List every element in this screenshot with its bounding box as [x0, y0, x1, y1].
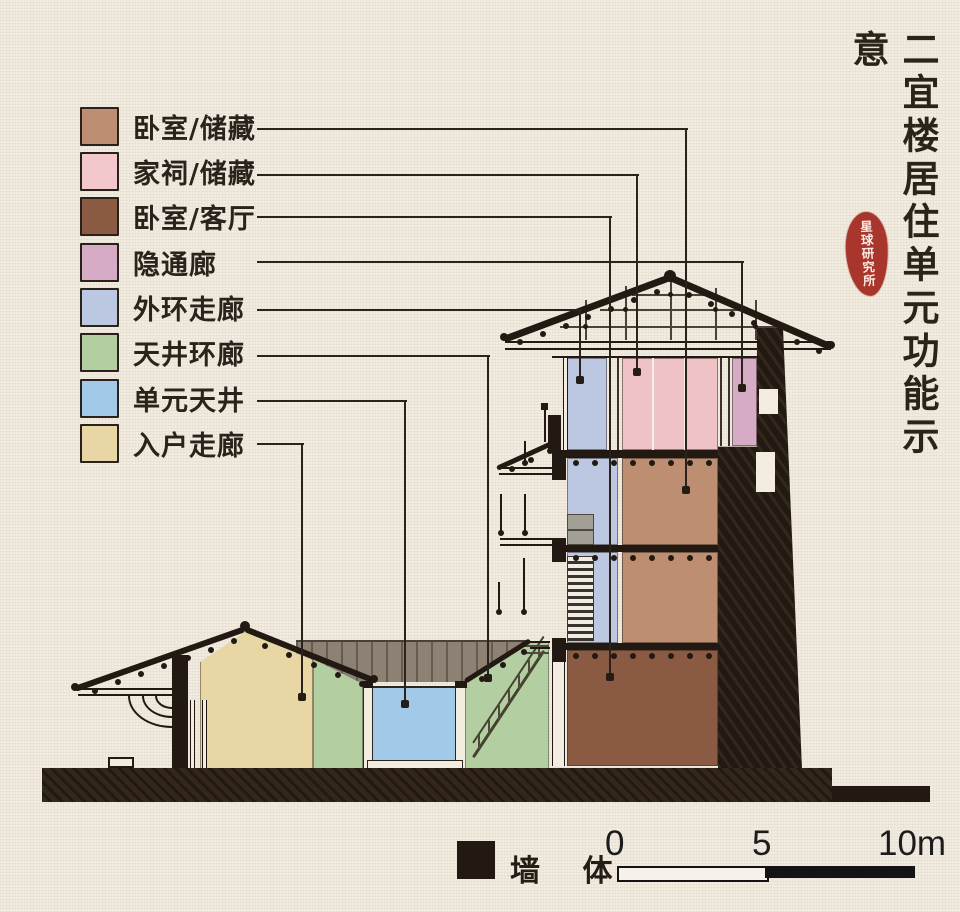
leader-line-v	[636, 174, 638, 373]
floor-slab	[552, 545, 718, 552]
stair-baluster	[478, 735, 480, 749]
tower-left-wall-seg	[552, 638, 566, 662]
leader-dot	[401, 700, 409, 708]
truss-post	[670, 281, 672, 340]
legend-label: 单元天井	[133, 379, 245, 418]
truss-beam	[600, 309, 745, 311]
unit-courtyard-region	[373, 686, 455, 768]
wall-window	[759, 389, 778, 414]
purlin-dot	[208, 647, 214, 653]
leader-line-h	[257, 355, 490, 357]
eave-tip	[370, 675, 378, 683]
legend-item-outer-ring-corridor: 外环走廊	[80, 289, 245, 325]
joist-dot	[706, 653, 712, 659]
leader-dot	[576, 376, 584, 384]
hanging-post	[523, 558, 525, 612]
bedroom-storage-room-2f	[622, 552, 718, 643]
legend-label: 外环走廊	[133, 288, 245, 327]
scale-tick-0: 0	[605, 824, 624, 864]
legend-item-unit-courtyard: 单元天井	[80, 380, 245, 416]
legend-label: 卧室/储藏	[133, 107, 256, 146]
finial-post	[544, 408, 546, 442]
scale-tick-5: 5	[752, 824, 771, 864]
bedroom-living-room-gf	[567, 650, 718, 766]
joist-dot	[668, 653, 674, 659]
truss-joint	[713, 307, 718, 312]
leader-dot	[738, 384, 746, 392]
gallery-column	[202, 700, 207, 768]
entry-step-stone	[108, 757, 134, 768]
left-cut-wall	[172, 655, 188, 768]
leader-line-v	[487, 355, 489, 679]
hanging-post-dot	[522, 460, 528, 466]
purlin-dot	[751, 320, 757, 326]
purlin-dot	[115, 679, 121, 685]
bedroom-storage-room-3f	[622, 458, 718, 545]
leader-line-v	[609, 216, 611, 678]
legend-swatch	[80, 197, 119, 236]
leader-dot	[606, 673, 614, 681]
joist-dot	[611, 653, 617, 659]
legend-item-courtyard-ring-corridor: 天井环廊	[80, 334, 245, 370]
legend-item-hidden-corridor: 隐通廊	[80, 244, 217, 280]
joist-dot	[649, 460, 655, 466]
truss-joint	[668, 292, 673, 297]
legend-item-bedroom-living: 卧室/客厅	[80, 198, 256, 234]
legend-label: 卧室/客厅	[133, 197, 256, 236]
canopy-board	[500, 538, 557, 540]
purlin-dot	[161, 663, 167, 669]
purlin-dot	[654, 289, 660, 295]
joist-dot	[630, 653, 636, 659]
post-line	[728, 358, 730, 446]
wall-key-swatch	[457, 841, 495, 879]
joist-dot	[687, 555, 693, 561]
studio-seal: 星球研究所	[844, 211, 890, 297]
stair-baluster	[508, 690, 510, 704]
hanging-post	[524, 494, 526, 533]
leader-line-h	[257, 128, 688, 130]
floor-slab	[552, 643, 718, 650]
leader-dot	[298, 693, 306, 701]
joist-dot	[611, 460, 617, 466]
leader-line-h	[257, 309, 582, 311]
ground-platform	[42, 768, 832, 802]
room-post	[652, 358, 654, 450]
stair-baluster	[498, 705, 500, 719]
stair-upper-flight	[567, 514, 594, 530]
purlin-dot	[708, 301, 714, 307]
hanging-post-dot	[522, 530, 528, 536]
hanging-post-dot	[521, 609, 527, 615]
leader-dot	[682, 486, 690, 494]
tower-left-wall-seg	[552, 450, 566, 480]
purlin-dot	[563, 323, 569, 329]
legend-swatch	[80, 152, 119, 191]
hanging-post-dot	[498, 530, 504, 536]
hanging-post-dot	[496, 609, 502, 615]
legend-swatch	[80, 333, 119, 372]
legend-label: 隐通廊	[133, 243, 217, 282]
legend-swatch	[80, 243, 119, 282]
hidden-corridor-region	[732, 358, 757, 446]
leader-line-v	[301, 443, 303, 698]
purlin-dot	[585, 314, 591, 320]
gf-door-opening	[552, 660, 565, 766]
joist-dot	[687, 653, 693, 659]
purlin-dot	[794, 339, 800, 345]
page-title: 二宜楼居住单元功能示意	[893, 30, 943, 490]
canopy-board	[530, 641, 550, 643]
leader-line-h	[257, 400, 407, 402]
tower-ridge-finial	[664, 270, 676, 282]
joist-dot	[706, 460, 712, 466]
joist-dot	[668, 460, 674, 466]
purlin-dot	[335, 672, 341, 678]
canopy-board	[530, 647, 550, 649]
legend-label: 家祠/储藏	[133, 152, 256, 191]
purlin-dot	[729, 311, 735, 317]
joist-dot	[592, 460, 598, 466]
legend-label: 天井环廊	[133, 333, 245, 372]
leader-dot	[633, 368, 641, 376]
leader-line-h	[257, 261, 744, 263]
post-line	[720, 358, 722, 446]
stair-baluster	[528, 660, 530, 674]
leader-line-v	[579, 309, 581, 381]
leader-line-v	[685, 128, 687, 491]
leader-line-v	[404, 400, 406, 705]
eave-tip	[827, 341, 835, 349]
stair-treads	[567, 556, 594, 641]
joist-dot	[592, 653, 598, 659]
legend-swatch	[80, 379, 119, 418]
legend-item-bedroom-storage: 卧室/储藏	[80, 108, 256, 144]
left-ridge-finial	[240, 621, 250, 631]
tower-roof-left-slope	[503, 274, 671, 343]
joist-dot	[649, 555, 655, 561]
purlin-dot	[517, 339, 523, 345]
joist-dot	[573, 555, 579, 561]
legend-label: 入户走廊	[133, 424, 245, 463]
truss-joint	[623, 307, 628, 312]
seal-text: 星球研究所	[859, 220, 876, 288]
purlin-dot	[521, 649, 527, 655]
joist-dot	[668, 555, 674, 561]
canopy-board	[500, 544, 557, 546]
tower-left-wall-seg	[552, 538, 566, 562]
canopy-board	[499, 473, 557, 475]
scale-bar-second-half	[765, 866, 915, 878]
courtyard-post-left	[363, 684, 373, 770]
outer-ring-corridor-4f	[567, 358, 607, 450]
hanging-post	[500, 494, 502, 533]
ground-platform-step	[832, 786, 930, 802]
legend-swatch	[80, 107, 119, 146]
legend-swatch	[80, 288, 119, 327]
canopy-board	[499, 467, 557, 469]
stair-baluster	[518, 675, 520, 689]
eryilou-section-diagram: 二宜楼居住单元功能示意 星球研究所 卧室/储藏 家祠/储藏 卧室/客厅 隐通廊 …	[0, 0, 960, 912]
eave-tip	[500, 333, 508, 341]
truss-beam	[560, 326, 780, 328]
wall-window	[756, 452, 775, 492]
hanging-post	[498, 582, 500, 612]
purlin-dot	[528, 457, 534, 463]
legend-swatch	[80, 424, 119, 463]
leader-line-h	[257, 174, 639, 176]
post-line	[617, 358, 619, 450]
joist-dot	[592, 555, 598, 561]
legend-item-entry-corridor: 入户走廊	[80, 425, 245, 461]
stair-baluster	[488, 720, 490, 734]
purlin-dot	[509, 466, 515, 472]
purlin-dot	[816, 348, 822, 354]
purlin-dot	[138, 671, 144, 677]
joist-dot	[649, 653, 655, 659]
scale-bar-first-half	[617, 866, 769, 882]
stair-upper-flight	[567, 530, 594, 545]
joist-dot	[630, 460, 636, 466]
truss-joint	[583, 324, 588, 329]
leader-dot	[484, 674, 492, 682]
joist-dot	[611, 555, 617, 561]
joist-dot	[630, 555, 636, 561]
tower-roof-right-slope	[669, 274, 834, 350]
purlin-dot	[540, 331, 546, 337]
gallery-column	[190, 700, 195, 768]
eave-board	[78, 688, 172, 690]
legend-item-shrine-storage: 家祠/储藏	[80, 153, 256, 189]
joist-dot	[706, 555, 712, 561]
leader-line-v	[741, 261, 743, 389]
joist-dot	[573, 460, 579, 466]
scale-tick-10m: 10m	[878, 824, 946, 864]
joist-dot	[687, 460, 693, 466]
joist-dot	[573, 653, 579, 659]
corner-post-4f	[563, 358, 568, 450]
leader-line-h	[257, 216, 612, 218]
purlin-dot	[311, 662, 317, 668]
slab-line	[552, 356, 757, 358]
leader-line-h	[257, 443, 304, 445]
purlin-dot	[359, 681, 365, 687]
purlin-dot	[686, 292, 692, 298]
